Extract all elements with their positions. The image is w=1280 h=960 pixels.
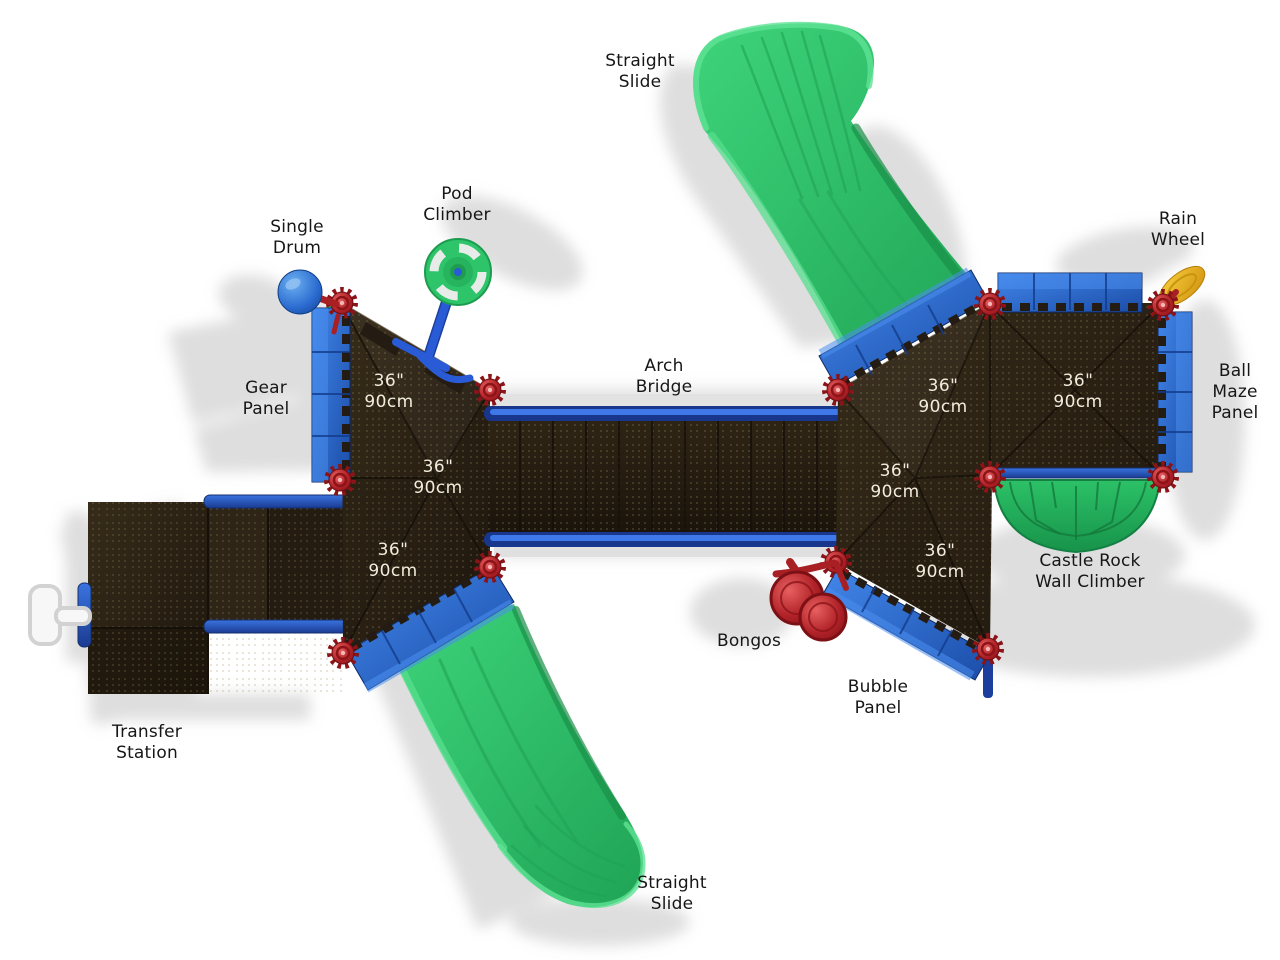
playground-structure-render (0, 0, 1280, 960)
label-straight-slide-top: Straight Slide (605, 51, 674, 93)
arch-bridge-deck (484, 394, 848, 557)
deck-height-label: 36" 90cm (368, 540, 417, 582)
label-gear-panel: Gear Panel (243, 378, 290, 420)
post-connector (477, 377, 504, 404)
label-ball-maze-panel: Ball Maze Panel (1212, 361, 1259, 424)
label-pod-climber: Pod Climber (423, 184, 491, 226)
label-bubble-panel: Bubble Panel (848, 677, 908, 719)
label-castle-rock-wall-climber: Castle Rock Wall Climber (1035, 551, 1145, 593)
deck-height-label: 36" 90cm (918, 376, 967, 418)
ball-maze-panel-wall (1158, 312, 1192, 472)
bridge-rail-bottom (484, 532, 848, 547)
transfer-rail-top (204, 495, 352, 508)
single-drum-sphere (278, 270, 322, 314)
label-transfer-station: Transfer Station (112, 722, 182, 764)
label-rain-wheel: Rain Wheel (1151, 209, 1205, 251)
label-bongos: Bongos (717, 631, 781, 652)
transfer-rail-bottom (204, 620, 354, 633)
label-arch-bridge: Arch Bridge (636, 356, 693, 398)
bongo-drum-small (800, 594, 846, 640)
label-single-drum: Single Drum (270, 217, 323, 259)
label-straight-slide-bottom: Straight Slide (637, 873, 706, 915)
deck-height-label: 36" 90cm (915, 541, 964, 583)
deck-height-label: 36" 90cm (413, 457, 462, 499)
deck-height-label: 36" 90cm (1053, 371, 1102, 413)
bridge-rail-top (484, 406, 848, 421)
gear-panel-wall (312, 305, 350, 482)
square-top-panel (998, 273, 1142, 312)
castle-edge-rail (988, 468, 1166, 478)
playground-top-view: Straight Slide Pod Climber Single Drum R… (0, 0, 1280, 960)
deck-height-label: 36" 90cm (364, 371, 413, 413)
deck-height-label: 36" 90cm (870, 461, 919, 503)
